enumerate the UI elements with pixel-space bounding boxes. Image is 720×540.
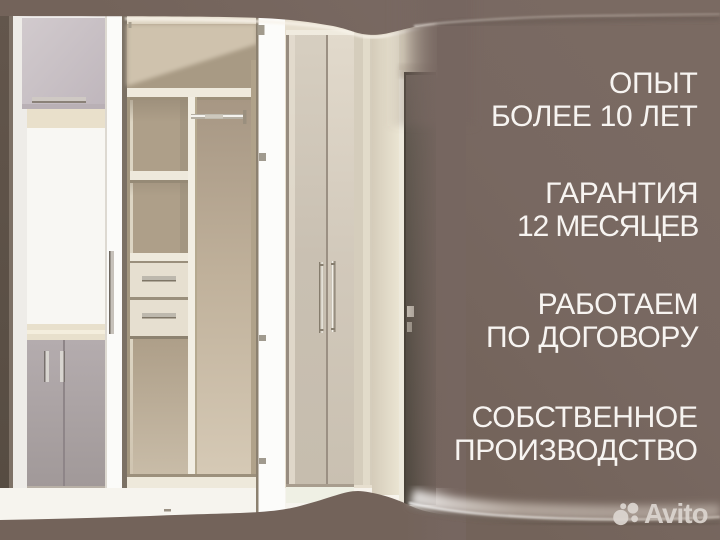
svg-text:Avito: Avito (644, 498, 708, 529)
